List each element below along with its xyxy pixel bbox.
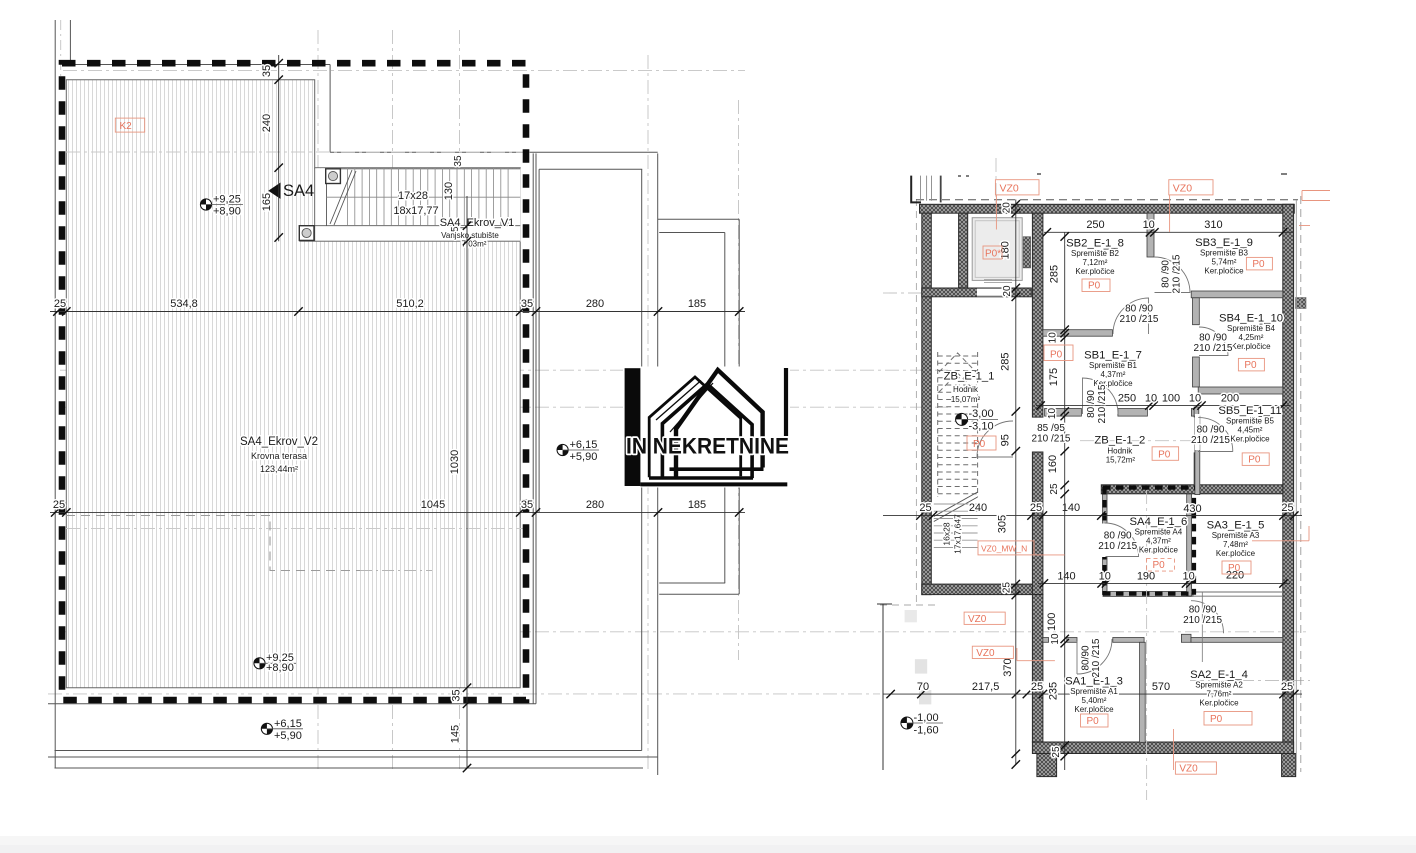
svg-text:25: 25 bbox=[1051, 746, 1062, 758]
svg-text:80 /90: 80 /90 bbox=[1189, 605, 1217, 616]
svg-text:Hodnik: Hodnik bbox=[953, 385, 979, 394]
svg-text:Spremište A4: Spremište A4 bbox=[1135, 528, 1183, 537]
svg-text:IN NEKRETNINE: IN NEKRETNINE bbox=[626, 434, 789, 459]
svg-text:280: 280 bbox=[586, 298, 604, 310]
svg-text:SA4_Ekrov_V1: SA4_Ekrov_V1 bbox=[440, 217, 515, 229]
svg-text:SA4_Ekrov_V2: SA4_Ekrov_V2 bbox=[240, 436, 318, 448]
svg-text:85 /95: 85 /95 bbox=[1037, 423, 1065, 434]
svg-text:SA3_E-1_5: SA3_E-1_5 bbox=[1207, 520, 1265, 532]
svg-text:P0: P0 bbox=[1050, 350, 1063, 361]
svg-text:210 /215: 210 /215 bbox=[1194, 343, 1233, 354]
svg-text:SB3_E-1_9: SB3_E-1_9 bbox=[1195, 237, 1253, 249]
svg-text:165: 165 bbox=[261, 193, 273, 211]
svg-text:7,12m²: 7,12m² bbox=[1083, 258, 1108, 267]
svg-text:140: 140 bbox=[1057, 571, 1075, 583]
svg-text:+6,15: +6,15 bbox=[570, 439, 598, 451]
svg-text:15,07m²: 15,07m² bbox=[951, 395, 981, 404]
svg-text:Spremište B4: Spremište B4 bbox=[1227, 324, 1276, 333]
svg-text:17x28: 17x28 bbox=[398, 190, 428, 202]
svg-text:160: 160 bbox=[1047, 455, 1059, 473]
svg-text:SA4_E-1_6: SA4_E-1_6 bbox=[1130, 516, 1188, 528]
svg-text:Hodnik: Hodnik bbox=[1107, 447, 1133, 456]
svg-text:SB5_E-1_11: SB5_E-1_11 bbox=[1218, 405, 1281, 417]
svg-text:100: 100 bbox=[1046, 613, 1058, 631]
svg-text:80 /90: 80 /90 bbox=[1104, 531, 1132, 542]
svg-text:210 /215: 210 /215 bbox=[1032, 434, 1071, 445]
svg-text:+6,15: +6,15 bbox=[274, 718, 302, 730]
svg-text:80/90: 80/90 bbox=[1081, 645, 1092, 670]
svg-text:217,5: 217,5 bbox=[972, 681, 1000, 693]
svg-text:210 /215: 210 /215 bbox=[1183, 615, 1222, 626]
svg-text:Ker.pločice: Ker.pločice bbox=[1199, 699, 1239, 708]
svg-text:190: 190 bbox=[1137, 571, 1155, 583]
svg-text:180: 180 bbox=[1000, 241, 1012, 259]
svg-text:4,37m²: 4,37m² bbox=[1146, 537, 1171, 546]
svg-text:10: 10 bbox=[1048, 332, 1059, 344]
svg-text:25: 25 bbox=[1049, 483, 1060, 495]
svg-text:4,37m²: 4,37m² bbox=[1101, 370, 1126, 379]
svg-text:+5,90: +5,90 bbox=[274, 730, 302, 742]
svg-text:VZ0_MW_N: VZ0_MW_N bbox=[981, 544, 1027, 554]
svg-text:P0: P0 bbox=[1244, 360, 1257, 371]
svg-text:80 /90: 80 /90 bbox=[1125, 304, 1153, 315]
svg-text:Spremište B3: Spremište B3 bbox=[1200, 249, 1249, 258]
svg-text:SB2_E-1_8: SB2_E-1_8 bbox=[1066, 238, 1124, 250]
svg-text:P0: P0 bbox=[1248, 454, 1261, 465]
svg-text:80 /90: 80 /90 bbox=[1161, 260, 1172, 288]
svg-text:Ker.pločice: Ker.pločice bbox=[1231, 342, 1271, 351]
svg-text:175: 175 bbox=[1048, 368, 1060, 386]
svg-text:ZB_E-1_1: ZB_E-1_1 bbox=[944, 371, 995, 383]
svg-text:10: 10 bbox=[1047, 408, 1058, 420]
svg-text:7,76m²: 7,76m² bbox=[1207, 690, 1232, 699]
svg-text:Ker.pločice: Ker.pločice bbox=[1139, 546, 1179, 555]
svg-text:7,48m²: 7,48m² bbox=[1223, 540, 1248, 549]
svg-text:4,45m²: 4,45m² bbox=[1238, 426, 1263, 435]
svg-text:Spremište A1: Spremište A1 bbox=[1070, 687, 1118, 696]
svg-text:Spremište B1: Spremište B1 bbox=[1089, 361, 1138, 370]
svg-text:185: 185 bbox=[688, 298, 706, 310]
svg-text:VZ0: VZ0 bbox=[968, 614, 987, 625]
svg-text:25: 25 bbox=[53, 499, 65, 511]
svg-text:VZ0: VZ0 bbox=[1000, 183, 1019, 195]
svg-text:+5,90: +5,90 bbox=[570, 451, 598, 463]
svg-text:10: 10 bbox=[1182, 571, 1194, 583]
svg-text:SA4: SA4 bbox=[283, 182, 314, 200]
svg-text:VZ0: VZ0 bbox=[1179, 764, 1198, 775]
svg-text:285: 285 bbox=[1000, 353, 1012, 371]
svg-text:80 /90: 80 /90 bbox=[1199, 333, 1227, 344]
svg-text:570: 570 bbox=[1152, 681, 1170, 693]
svg-text:VZ0: VZ0 bbox=[1173, 183, 1192, 195]
svg-text:Ker.pločice: Ker.pločice bbox=[1230, 435, 1270, 444]
svg-text:210 /215: 210 /215 bbox=[1191, 435, 1230, 446]
svg-text:250: 250 bbox=[1086, 219, 1104, 231]
svg-text:20: 20 bbox=[1002, 285, 1013, 297]
svg-text:Spremište A2: Spremište A2 bbox=[1195, 681, 1243, 690]
svg-text:35: 35 bbox=[453, 155, 464, 167]
svg-text:5,40m²: 5,40m² bbox=[1082, 696, 1107, 705]
svg-text:80 /90: 80 /90 bbox=[1086, 390, 1097, 418]
svg-text:210 /215: 210 /215 bbox=[1172, 254, 1183, 293]
svg-text:Spremište B5: Spremište B5 bbox=[1226, 417, 1275, 426]
svg-text:7,03m²: 7,03m² bbox=[462, 240, 487, 249]
svg-text:95: 95 bbox=[1000, 434, 1012, 446]
svg-text:80 /90: 80 /90 bbox=[1197, 425, 1225, 436]
svg-text:145: 145 bbox=[450, 725, 462, 743]
svg-text:17x17,647: 17x17,647 bbox=[953, 514, 963, 554]
svg-text:+9,25: +9,25 bbox=[213, 194, 241, 206]
svg-text:Krovna terasa: Krovna terasa bbox=[251, 451, 307, 461]
svg-text:Ker.pločice: Ker.pločice bbox=[1074, 705, 1114, 714]
svg-text:305: 305 bbox=[997, 515, 1009, 533]
svg-text:130: 130 bbox=[443, 182, 455, 200]
svg-text:10: 10 bbox=[1050, 633, 1061, 645]
svg-text:SB1_E-1_7: SB1_E-1_7 bbox=[1084, 350, 1142, 362]
svg-text:P0*: P0* bbox=[985, 249, 1001, 260]
svg-text:370: 370 bbox=[1002, 658, 1014, 676]
svg-text:25: 25 bbox=[54, 298, 66, 310]
svg-text:123,44m²: 123,44m² bbox=[260, 464, 298, 474]
svg-text:35: 35 bbox=[451, 689, 463, 701]
svg-text:25: 25 bbox=[1281, 502, 1293, 514]
svg-text:P0: P0 bbox=[1088, 281, 1101, 292]
svg-text:200: 200 bbox=[1221, 392, 1239, 404]
svg-text:SB4_E-1_10: SB4_E-1_10 bbox=[1219, 313, 1283, 325]
svg-text:25: 25 bbox=[1281, 681, 1293, 693]
svg-text:430: 430 bbox=[1183, 503, 1201, 515]
svg-text:4,25m²: 4,25m² bbox=[1239, 333, 1264, 342]
svg-text:35: 35 bbox=[521, 499, 533, 511]
svg-text:210 /215: 210 /215 bbox=[1091, 638, 1102, 677]
svg-text:10: 10 bbox=[1189, 392, 1201, 404]
svg-text:10: 10 bbox=[1099, 571, 1111, 583]
svg-text:1030: 1030 bbox=[449, 450, 461, 474]
svg-text:10: 10 bbox=[1145, 392, 1157, 404]
svg-text:SA2_E-1_4: SA2_E-1_4 bbox=[1190, 669, 1248, 681]
svg-text:P0: P0 bbox=[1153, 560, 1166, 571]
svg-text:534,8: 534,8 bbox=[170, 298, 198, 310]
svg-text:185: 185 bbox=[688, 499, 706, 511]
svg-text:25: 25 bbox=[1030, 502, 1042, 514]
svg-text:18x17,77: 18x17,77 bbox=[393, 205, 438, 217]
svg-text:240: 240 bbox=[969, 502, 987, 514]
svg-text:70: 70 bbox=[917, 681, 929, 693]
svg-text:Spremište B2: Spremište B2 bbox=[1071, 249, 1120, 258]
svg-text:310: 310 bbox=[1204, 219, 1222, 231]
svg-text:+8,90: +8,90 bbox=[266, 662, 294, 674]
svg-text:25: 25 bbox=[919, 502, 931, 514]
svg-text:-3,10: -3,10 bbox=[969, 421, 994, 433]
svg-text:Ker.pločice: Ker.pločice bbox=[1075, 267, 1115, 276]
svg-text:25: 25 bbox=[1031, 681, 1043, 693]
svg-text:P0: P0 bbox=[1252, 259, 1265, 270]
svg-text:20: 20 bbox=[1002, 202, 1013, 214]
svg-text:10: 10 bbox=[1143, 219, 1155, 231]
svg-text:510,2: 510,2 bbox=[396, 298, 424, 310]
svg-text:P0: P0 bbox=[1228, 563, 1241, 574]
svg-text:250: 250 bbox=[1118, 392, 1136, 404]
svg-text:1045: 1045 bbox=[421, 499, 445, 511]
svg-text:P0: P0 bbox=[1087, 716, 1100, 727]
svg-text:Ker.pločice: Ker.pločice bbox=[1216, 549, 1256, 558]
svg-text:P0: P0 bbox=[1158, 449, 1171, 460]
svg-text:285: 285 bbox=[1049, 265, 1061, 283]
svg-text:5,74m²: 5,74m² bbox=[1212, 258, 1237, 267]
svg-text:P0: P0 bbox=[973, 439, 986, 450]
svg-text:-1,60: -1,60 bbox=[914, 725, 939, 737]
svg-text:210 /215: 210 /215 bbox=[1097, 384, 1108, 423]
svg-text:210 /215: 210 /215 bbox=[1120, 314, 1159, 325]
svg-text:280: 280 bbox=[586, 499, 604, 511]
svg-text:35: 35 bbox=[521, 298, 533, 310]
svg-text:P0: P0 bbox=[1210, 714, 1223, 725]
svg-text:ZB_E-1_2: ZB_E-1_2 bbox=[1094, 435, 1145, 447]
svg-text:35: 35 bbox=[261, 65, 273, 77]
svg-text:+8,90: +8,90 bbox=[213, 206, 241, 218]
svg-text:15,72m²: 15,72m² bbox=[1106, 456, 1136, 465]
svg-text:235: 235 bbox=[1047, 682, 1059, 700]
svg-text:VZ0: VZ0 bbox=[976, 648, 995, 659]
svg-text:Ker.pločice: Ker.pločice bbox=[1204, 267, 1244, 276]
svg-text:100: 100 bbox=[1162, 392, 1180, 404]
svg-text:25: 25 bbox=[1002, 582, 1013, 594]
svg-text:-3,00: -3,00 bbox=[969, 408, 994, 420]
svg-text:K2: K2 bbox=[120, 121, 133, 132]
svg-text:210 /215: 210 /215 bbox=[1098, 541, 1137, 552]
svg-text:Spremište A3: Spremište A3 bbox=[1212, 531, 1260, 540]
svg-text:-1,00: -1,00 bbox=[914, 712, 939, 724]
svg-text:240: 240 bbox=[261, 114, 273, 132]
svg-text:16x28: 16x28 bbox=[942, 522, 952, 545]
